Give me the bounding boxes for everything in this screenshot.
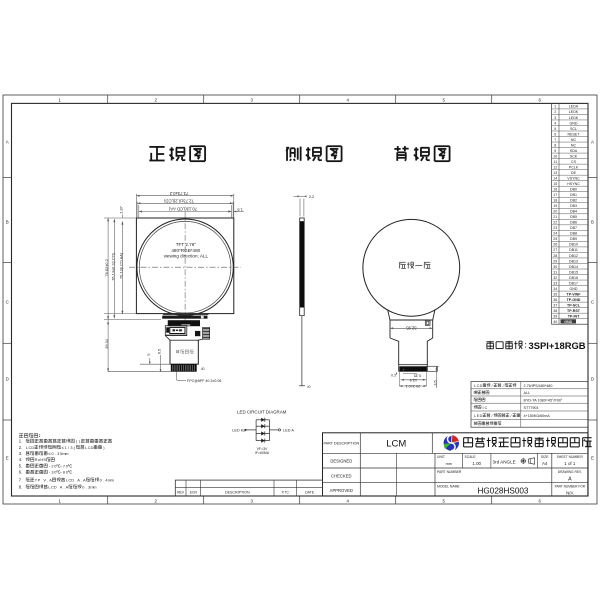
svg-text:DATE: DATE (305, 490, 315, 494)
svg-text:2.: 2. (19, 445, 23, 450)
svg-text:P: P (38, 477, 41, 482)
svg-text:DE: DE (571, 171, 577, 175)
svg-text:LCM: LCM (386, 439, 406, 450)
svg-text:A: A (49, 477, 52, 482)
svg-text:P.TC: P.TC (282, 490, 290, 494)
svg-text:40: 40 (553, 320, 557, 324)
svg-text:A: A (77, 477, 80, 482)
svg-text:480*RGB*480: 480*RGB*480 (171, 248, 200, 253)
svg-text:CS: CS (571, 160, 577, 164)
svg-text:22: 22 (553, 221, 557, 225)
svg-text:3: 3 (57, 451, 59, 456)
svg-text:DESIGNED: DESIGNED (330, 459, 352, 464)
svg-text:B: B (6, 220, 9, 225)
svg-text:70.13(LCD AA): 70.13(LCD AA) (168, 207, 197, 212)
svg-text:D: D (480, 384, 483, 388)
svg-text:GND: GND (570, 121, 578, 125)
svg-text:32.95: 32.95 (406, 326, 417, 331)
svg-text:2.2: 2.2 (309, 194, 315, 199)
svg-text:3.5: 3.5 (434, 380, 438, 385)
svg-text:APPROVED: APPROVED (330, 488, 353, 493)
svg-text:m: m (65, 451, 68, 456)
svg-text:TFT 2.76": TFT 2.76" (176, 242, 197, 247)
svg-text:31: 31 (553, 270, 557, 274)
svg-text:0.3: 0.3 (391, 373, 396, 377)
svg-text:1.00: 1.00 (472, 461, 481, 466)
svg-text:mm: mm (446, 462, 452, 466)
svg-text:38: 38 (553, 309, 557, 313)
svg-text:12: 12 (553, 165, 557, 169)
svg-text:.: . (81, 477, 82, 482)
svg-text:.: . (63, 484, 64, 489)
svg-text:ALL: ALL (524, 391, 531, 395)
svg-text:2.76/IPS/480*480: 2.76/IPS/480*480 (524, 384, 553, 388)
svg-text:A: A (6, 140, 9, 145)
svg-text:SCK: SCK (570, 154, 578, 158)
svg-text:viewing direction: ALL: viewing direction: ALL (164, 254, 209, 259)
svg-text:REV: REV (177, 490, 185, 494)
svg-text:8: 8 (63, 470, 65, 475)
svg-text:10: 10 (553, 154, 557, 158)
svg-text:SHEET NUMBER: SHEET NUMBER (557, 455, 584, 459)
svg-text:DB8: DB8 (570, 232, 577, 236)
svg-text:D: D (54, 484, 57, 489)
svg-text:4: 4 (554, 121, 556, 125)
svg-text:I: I (482, 406, 483, 410)
svg-text:DB6: DB6 (570, 221, 577, 225)
svg-text:C: C (591, 300, 594, 305)
svg-text:ECN: ECN (190, 490, 198, 494)
svg-text:LEDK: LEDK (569, 110, 579, 114)
svg-text:HSYNC: HSYNC (567, 182, 580, 186)
svg-text:19: 19 (553, 204, 557, 208)
svg-text:A: A (591, 140, 594, 145)
svg-text:21: 21 (553, 215, 557, 219)
svg-text:GND: GND (570, 287, 578, 291)
svg-text:D: D (91, 445, 94, 450)
svg-text:18: 18 (553, 199, 557, 203)
svg-text:20.3±0.1: 20.3±0.1 (405, 384, 420, 389)
svg-text:9: 9 (554, 149, 556, 153)
svg-text:4+150KΩ/60mA: 4+150KΩ/60mA (524, 414, 551, 418)
svg-text:FPC@8PF 40.3±0.08: FPC@8PF 40.3±0.08 (187, 379, 221, 383)
svg-text:RESET: RESET (568, 132, 581, 136)
svg-text:LED Ka: LED Ka (232, 428, 246, 432)
svg-text:DB3: DB3 (570, 204, 577, 208)
svg-text:VSYNC: VSYNC (567, 176, 580, 180)
svg-text:PCLK: PCLK (569, 165, 579, 169)
svg-text:ST77903: ST77903 (524, 406, 539, 410)
svg-text:39.34: 39.34 (104, 338, 109, 349)
svg-text:PART NUMBER FOR: PART NUMBER FOR (555, 484, 586, 488)
svg-text:CHECKED: CHECKED (331, 473, 351, 478)
svg-text:DB17: DB17 (569, 281, 578, 285)
svg-text:LED CIRCUIT DIAGRAM: LED CIRCUIT DIAGRAM (237, 409, 287, 414)
svg-text:6: 6 (554, 132, 556, 136)
svg-text:TP-VINF: TP-VINF (567, 292, 582, 296)
svg-text:3rd ANGLE: 3rd ANGLE (493, 459, 516, 464)
svg-text:DB10: DB10 (569, 243, 578, 247)
svg-text:29: 29 (553, 259, 557, 263)
svg-text:5.: 5. (19, 463, 23, 468)
svg-text:m: m (111, 477, 114, 482)
svg-text:A4: A4 (542, 461, 548, 466)
svg-text:D: D (480, 414, 483, 418)
svg-text:DB0: DB0 (570, 188, 577, 192)
svg-text:23: 23 (553, 226, 557, 230)
svg-text:37: 37 (553, 303, 557, 307)
svg-text:DB16: DB16 (569, 276, 578, 280)
svg-text:DRAWING REV.: DRAWING REV. (558, 470, 582, 474)
svg-text:℃: ℃ (68, 470, 73, 475)
svg-text:27: 27 (553, 248, 557, 252)
svg-text:LED A: LED A (283, 428, 294, 432)
svg-text:GND: GND (564, 320, 572, 324)
svg-text:DB4: DB4 (570, 210, 577, 214)
svg-text:DESCRIPTION: DESCRIPTION (225, 490, 250, 494)
svg-text:11: 11 (553, 160, 557, 164)
svg-text:TP-GND: TP-GND (567, 298, 581, 302)
svg-text:6.: 6. (19, 470, 23, 475)
svg-text:24: 24 (553, 232, 557, 236)
svg-text:PART NUMBER: PART NUMBER (437, 470, 462, 474)
svg-text:15: 15 (553, 182, 557, 186)
svg-text:33: 33 (553, 281, 557, 285)
svg-text:3SPI+18RGB: 3SPI+18RGB (529, 340, 586, 351)
svg-text:IF=60MA: IF=60MA (255, 451, 270, 455)
svg-text:30: 30 (553, 265, 557, 269)
svg-text:8.: 8. (19, 484, 23, 489)
svg-text:LEDK: LEDK (569, 116, 579, 120)
svg-text:DB1: DB1 (570, 193, 577, 197)
svg-text:72.73±0.2(LCD): 72.73±0.2(LCD) (164, 198, 194, 203)
svg-text:32: 32 (553, 276, 557, 280)
svg-text:.: . (103, 477, 104, 482)
svg-text:N/A: N/A (566, 490, 573, 495)
svg-text:35: 35 (553, 292, 557, 296)
svg-text:26: 26 (553, 243, 557, 247)
svg-text:20: 20 (553, 210, 557, 214)
svg-text:73.73±0.2: 73.73±0.2 (169, 191, 188, 196)
svg-text:6.5: 6.5 (158, 349, 162, 354)
svg-text:SDA: SDA (570, 149, 578, 153)
svg-text:B: B (591, 220, 594, 225)
svg-text:1: 1 (65, 445, 67, 450)
svg-text:SCL: SCL (570, 127, 577, 131)
svg-text:1.: 1. (19, 439, 23, 444)
svg-text:2: 2 (51, 463, 53, 468)
svg-text:LEDA: LEDA (569, 105, 579, 109)
svg-text:SIZE: SIZE (541, 455, 549, 459)
svg-text:NC: NC (571, 143, 577, 147)
svg-text:13.9: 13.9 (410, 378, 418, 383)
svg-text:36: 36 (553, 298, 557, 302)
svg-text:TP-INT: TP-INT (568, 314, 580, 318)
svg-text:7.: 7. (19, 477, 23, 482)
svg-text:.: . (55, 451, 56, 456)
svg-text:DB13: DB13 (569, 259, 578, 263)
svg-text:DB11: DB11 (569, 248, 578, 252)
svg-text:7: 7 (554, 138, 556, 142)
svg-text:A: A (83, 477, 86, 482)
svg-text:1: 1 (554, 105, 556, 109)
svg-text:℃: ℃ (68, 463, 73, 468)
svg-text:34: 34 (553, 287, 557, 291)
svg-text:SCALE: SCALE (465, 455, 477, 459)
svg-text:PART DESCRIPTION: PART DESCRIPTION (323, 442, 359, 446)
svg-text:UNIT: UNIT (437, 455, 445, 459)
svg-text:D: D (6, 377, 9, 382)
svg-text:13: 13 (553, 171, 557, 175)
svg-text:28: 28 (553, 254, 557, 258)
svg-text:A: A (60, 484, 63, 489)
svg-text:1.6: 1.6 (236, 207, 242, 212)
svg-text:3.: 3. (19, 451, 23, 456)
svg-text:2: 2 (554, 110, 556, 114)
svg-text:1 of 1: 1 of 1 (564, 461, 576, 466)
svg-text:C: C (485, 406, 488, 410)
svg-text:t0: t0 (308, 385, 311, 389)
svg-text:TP-RST: TP-RST (567, 309, 581, 313)
svg-text:16: 16 (553, 188, 557, 192)
svg-text:3: 3 (70, 445, 72, 450)
svg-text:HG028HS003: HG028HS003 (478, 487, 529, 496)
svg-text:8: 8 (554, 143, 556, 147)
svg-text:17: 17 (553, 193, 557, 197)
svg-text:.: . (47, 477, 48, 482)
svg-text:A: A (568, 477, 572, 483)
svg-text:7: 7 (63, 463, 65, 468)
svg-text:5: 5 (147, 353, 151, 355)
svg-text:70.13(LCD AA): 70.13(LCD AA) (119, 252, 124, 279)
svg-text:40: 40 (201, 367, 205, 371)
svg-text:0.35: 0.35 (414, 374, 421, 378)
svg-text:D: D (591, 377, 594, 382)
svg-text:MODEL NAME: MODEL NAME (437, 485, 460, 489)
svg-text:V: V (43, 477, 46, 482)
svg-text:.: . (86, 484, 87, 489)
svg-text:DB5: DB5 (570, 215, 577, 219)
svg-text:76.13±0.2(LCD): 76.13±0.2(LCD) (110, 252, 115, 280)
svg-text:39: 39 (553, 314, 557, 318)
svg-text:C: C (6, 300, 9, 305)
svg-text:3: 3 (51, 470, 53, 475)
svg-text:4.: 4. (19, 457, 23, 462)
svg-text:DB9: DB9 (570, 237, 577, 241)
svg-text:DB12: DB12 (569, 254, 578, 258)
svg-text:NC: NC (571, 138, 577, 142)
svg-text:76.82±0.2: 76.82±0.2 (104, 259, 109, 276)
svg-text:L: L (474, 414, 476, 418)
svg-text:5: 5 (554, 127, 556, 131)
svg-text:D: D (31, 445, 34, 450)
svg-text:S: S (43, 457, 46, 462)
svg-text:BYD-TA 1080=45°/F90°: BYD-TA 1080=45°/F90° (524, 398, 563, 402)
svg-text:DB15: DB15 (569, 270, 578, 274)
svg-text:DB2: DB2 (570, 199, 577, 203)
svg-text:TP-SCL: TP-SCL (567, 303, 581, 307)
svg-text:DB7: DB7 (570, 226, 577, 230)
svg-text:m: m (93, 484, 96, 489)
svg-text:E: E (591, 456, 594, 461)
svg-text:E: E (6, 456, 9, 461)
svg-text:A: A (66, 484, 69, 489)
svg-text:14: 14 (553, 176, 557, 180)
svg-text:25: 25 (553, 237, 557, 241)
svg-text:1.87: 1.87 (119, 206, 124, 214)
svg-text:DB14: DB14 (569, 265, 578, 269)
svg-text:D: D (71, 477, 74, 482)
svg-text:3: 3 (554, 116, 556, 120)
